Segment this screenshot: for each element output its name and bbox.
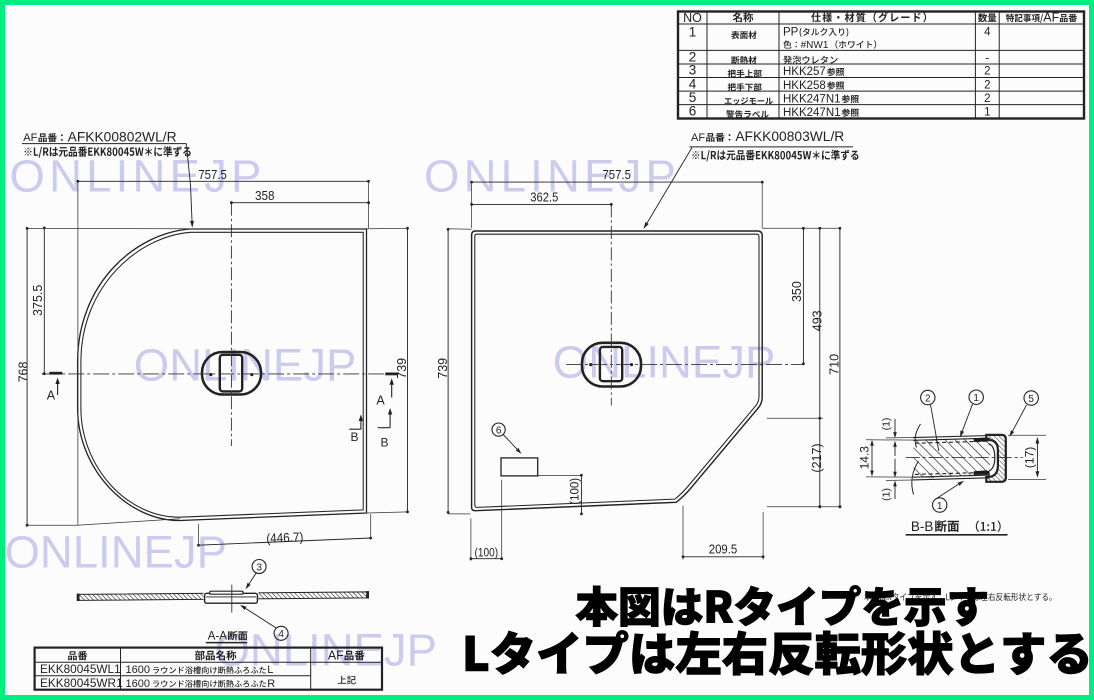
svg-text:AFKK00803WL/R: AFKK00803WL/R [735,129,844,144]
svg-text:6: 6 [496,425,502,436]
svg-text:2: 2 [925,393,931,404]
svg-text:AF: AF [1043,10,1059,24]
svg-text:EKK80045WR1: EKK80045WR1 [40,676,123,690]
svg-text:209.5: 209.5 [709,541,738,556]
svg-text:AFKK00802WL/R: AFKK00802WL/R [68,129,177,144]
svg-text:ONLINEJP: ONLINEJP [134,340,357,391]
svg-text:AF: AF [691,132,705,144]
svg-text:R: R [267,678,275,690]
svg-text:B: B [351,430,359,444]
svg-text:1600: 1600 [126,678,150,690]
svg-text:AF: AF [328,649,344,663]
svg-text:HKK258: HKK258 [783,80,826,92]
svg-text:A: A [47,389,56,403]
svg-text:(217): (217) [810,443,824,472]
svg-text:A-A: A-A [208,631,228,643]
svg-text:739: 739 [395,358,409,379]
svg-text:L: L [267,664,273,676]
svg-text:3: 3 [256,562,262,573]
svg-text:2: 2 [984,93,990,105]
svg-text:(17): (17) [1022,447,1036,468]
svg-text:PP: PP [783,27,799,39]
svg-text:(1): (1) [881,418,893,431]
svg-text:4: 4 [984,27,991,39]
svg-text:B: B [381,436,389,450]
svg-text:710: 710 [828,354,842,375]
svg-text:(100): (100) [570,478,582,505]
svg-text:NO: NO [683,11,702,25]
svg-text:4: 4 [278,629,284,640]
svg-text:(1): (1) [881,488,893,501]
svg-text:2: 2 [984,66,990,78]
svg-text:ONLINEJP: ONLINEJP [10,150,266,201]
svg-text:(100): (100) [475,545,499,559]
svg-text:493: 493 [810,310,824,331]
svg-text:A: A [376,394,385,408]
svg-text:6: 6 [689,103,697,118]
svg-text:375.5: 375.5 [31,285,45,316]
svg-text:757.5: 757.5 [602,167,631,182]
svg-text:1600: 1600 [126,664,150,676]
svg-text:ONLINEJP: ONLINEJP [5,526,228,577]
svg-text:HKK247N1: HKK247N1 [783,93,841,105]
svg-text:5: 5 [1028,394,1034,405]
svg-text:HKK247N1: HKK247N1 [783,107,841,119]
svg-text:HKK257: HKK257 [783,66,826,78]
svg-text:1: 1 [937,501,943,512]
svg-text:362.5: 362.5 [530,189,558,204]
svg-text:1: 1 [689,25,697,40]
svg-text:AF: AF [23,132,37,144]
svg-text:739: 739 [436,358,450,379]
svg-text:768: 768 [16,362,30,383]
svg-text:EKK80045WL1: EKK80045WL1 [40,662,121,676]
svg-text:1: 1 [973,393,979,404]
svg-text:358: 358 [255,188,275,203]
svg-text:1: 1 [984,106,990,118]
svg-text:757.5: 757.5 [198,167,227,182]
svg-text:-: - [985,52,989,64]
svg-text:2: 2 [984,79,990,91]
svg-text:B-B: B-B [911,519,934,534]
svg-text:(446.7): (446.7) [266,529,304,546]
svg-text:350: 350 [790,281,804,302]
svg-text:#NW1: #NW1 [801,40,829,51]
svg-text:14.3: 14.3 [857,446,871,470]
